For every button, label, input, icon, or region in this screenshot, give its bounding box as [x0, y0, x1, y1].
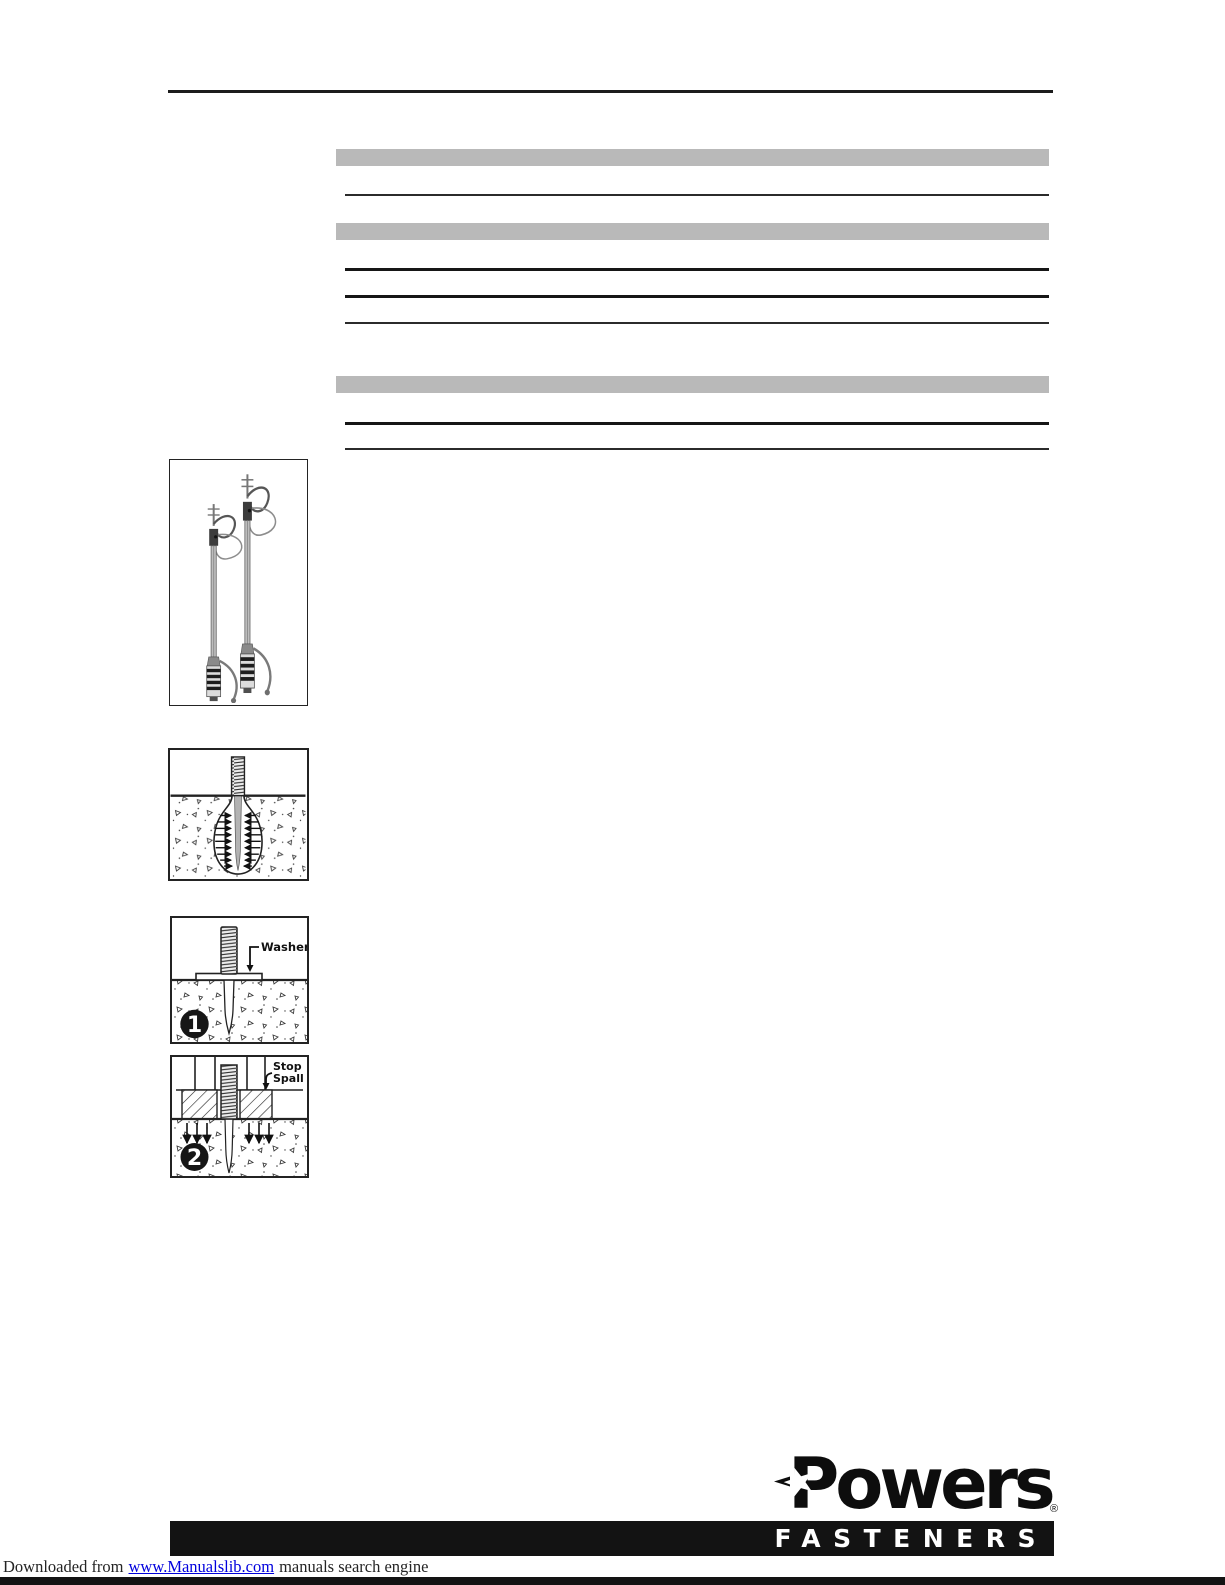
- table-header-bar-1: [336, 149, 1049, 166]
- footer-prefix: Downloaded from: [3, 1557, 124, 1576]
- figure-expansion-anchor: [168, 748, 309, 881]
- page-top-rule: [168, 90, 1053, 93]
- spall-label: Spall: [273, 1072, 304, 1085]
- table-rule-6: [345, 448, 1049, 450]
- figure-setting-tools: [169, 459, 308, 706]
- page-container: Washer 1: [0, 0, 1225, 1585]
- table-header-bar-3: [336, 376, 1049, 393]
- table-rule-1: [345, 194, 1049, 196]
- stop-spall-illustration: Stop Spall 2: [172, 1057, 307, 1176]
- manualslib-footer: Downloaded fromwww.Manualslib.commanuals…: [3, 1557, 428, 1577]
- table-rule-5: [345, 422, 1049, 425]
- setting-tools-illustration: [170, 460, 305, 703]
- table-rule-2: [345, 268, 1049, 271]
- fasteners-banner-text: FASTENERS: [775, 1521, 1048, 1556]
- figure-step-1: Washer 1: [170, 916, 309, 1044]
- manualslib-link[interactable]: www.Manualslib.com: [129, 1557, 275, 1576]
- registered-trademark: ®: [1050, 1503, 1058, 1515]
- logo-star-icon: [782, 1465, 816, 1499]
- footer-suffix: manuals search engine: [279, 1557, 428, 1576]
- washer-installation-illustration: Washer 1: [172, 918, 307, 1042]
- expansion-force-illustration: [170, 750, 306, 878]
- table-rule-3: [345, 295, 1049, 298]
- table-rule-4: [345, 322, 1049, 324]
- step-1-number: 1: [187, 1013, 202, 1038]
- powers-logo: Powers ®: [775, 1461, 1061, 1523]
- fasteners-banner: FASTENERS: [170, 1521, 1054, 1556]
- washer-label: Washer: [261, 940, 307, 954]
- step-2-number: 2: [187, 1146, 202, 1171]
- figure-step-2: Stop Spall 2: [170, 1055, 309, 1178]
- bottom-strip: [0, 1577, 1225, 1585]
- powers-wordmark: Powers: [788, 1449, 1052, 1519]
- table-header-bar-2: [336, 223, 1049, 240]
